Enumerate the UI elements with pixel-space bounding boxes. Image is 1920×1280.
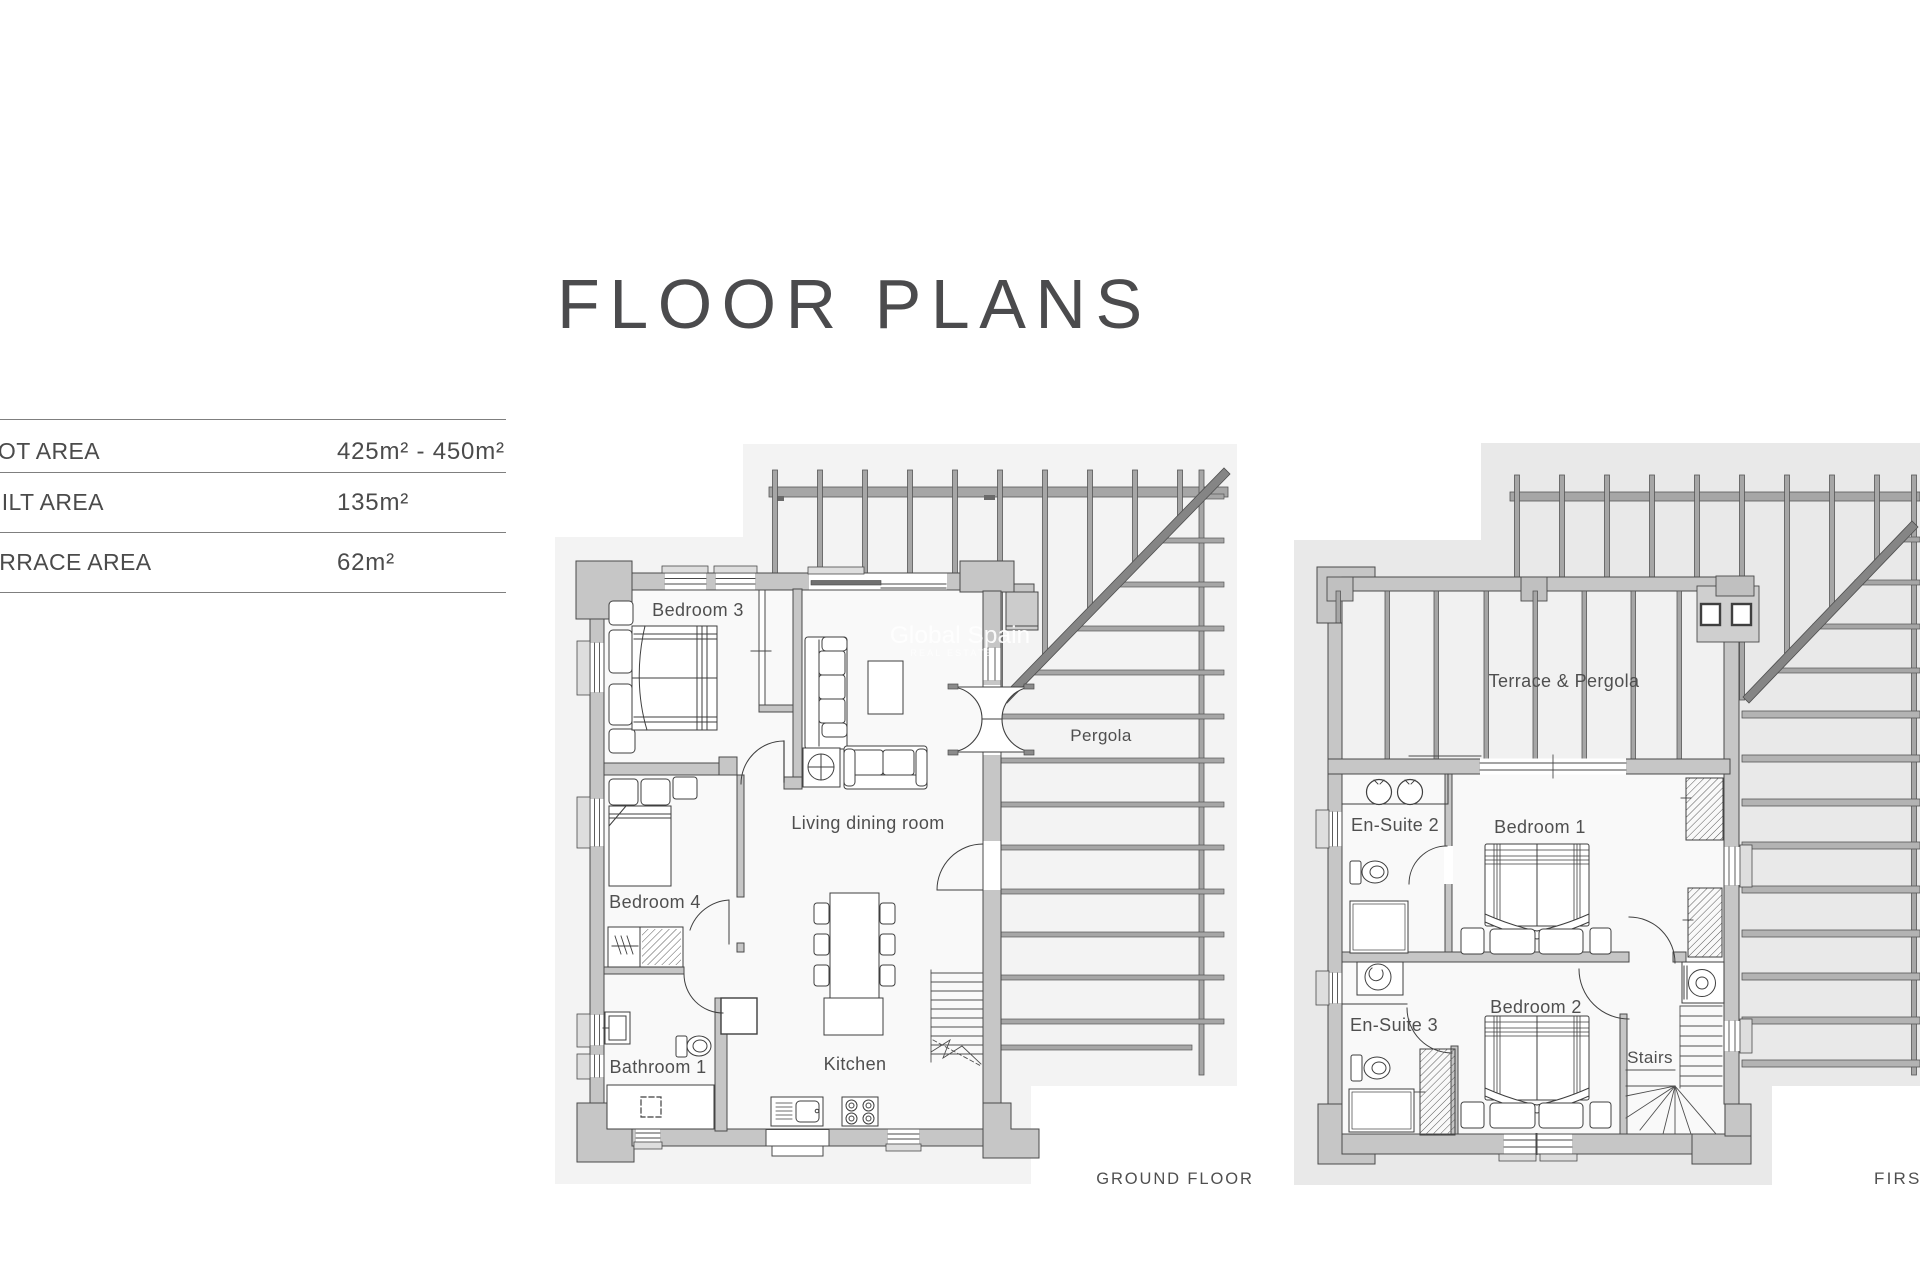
- svg-text:Bedroom 4: Bedroom 4: [609, 892, 701, 912]
- svg-text:Living dining room: Living dining room: [791, 813, 944, 833]
- svg-text:Bedroom 2: Bedroom 2: [1490, 997, 1582, 1017]
- svg-text:Bedroom 3: Bedroom 3: [652, 600, 744, 620]
- svg-text:En-Suite 3: En-Suite 3: [1350, 1015, 1438, 1035]
- svg-text:REAL ESTATE: REAL ESTATE: [910, 648, 994, 658]
- svg-text:Pergola: Pergola: [1070, 726, 1132, 745]
- svg-text:En-Suite 2: En-Suite 2: [1351, 815, 1439, 835]
- svg-text:GROUND FLOOR: GROUND FLOOR: [1096, 1170, 1254, 1188]
- svg-text:Stairs: Stairs: [1627, 1048, 1673, 1067]
- svg-text:Bathroom 1: Bathroom 1: [609, 1057, 706, 1077]
- svg-text:Bedroom 1: Bedroom 1: [1494, 817, 1586, 837]
- svg-text:Kitchen: Kitchen: [824, 1054, 887, 1074]
- svg-text:Terrace & Pergola: Terrace & Pergola: [1489, 671, 1640, 691]
- svg-text:Global Spain: Global Spain: [890, 622, 1030, 649]
- svg-text:FIRST FLOOR: FIRST FLOOR: [1874, 1169, 1920, 1188]
